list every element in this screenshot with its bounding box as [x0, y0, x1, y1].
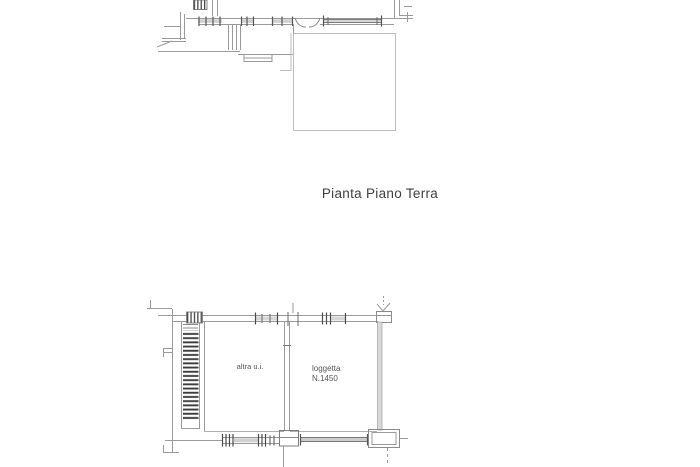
upper-plan-lower-lines	[229, 24, 294, 62]
left-room-label: altra u.i.	[226, 362, 274, 372]
lower-floor-plan-fragment	[147, 296, 408, 467]
lower-plan-middle-wall	[283, 303, 298, 431]
right-room-label-line2: N.1450	[312, 374, 340, 384]
upper-plan-stair-fragment	[194, 0, 218, 16]
upper-floor-plan-fragment	[157, 0, 413, 131]
lower-plan-top-wall-windows	[187, 312, 347, 325]
lower-plan-bottom-long-window	[300, 434, 368, 446]
lower-plan-bottom-wall-windows	[223, 434, 275, 447]
right-room-label-line1: loggetta	[312, 364, 340, 374]
lower-plan-right-wall	[378, 322, 383, 430]
scanned-floor-plan-page: Pianta Piano Terra altra u.i. loggetta N…	[0, 0, 700, 467]
lower-plan-left-wall	[163, 309, 179, 453]
stair-treads	[183, 331, 199, 420]
courtyard-outline	[280, 24, 396, 131]
right-room-label: loggetta N.1450	[312, 364, 340, 384]
plan-title: Pianta Piano Terra	[280, 186, 480, 201]
floor-plan-drawing	[0, 0, 700, 467]
lower-plan-bottom-center-block	[280, 431, 299, 447]
lower-plan-continuation-lines	[284, 446, 388, 467]
upper-plan-door-opening	[295, 18, 320, 27]
lower-plan-top-right-pillar	[377, 296, 392, 323]
lower-plan-bottom-right-block	[369, 430, 409, 448]
staircase	[181, 322, 205, 431]
scan-layer: Pianta Piano Terra altra u.i. loggetta N…	[0, 0, 700, 467]
